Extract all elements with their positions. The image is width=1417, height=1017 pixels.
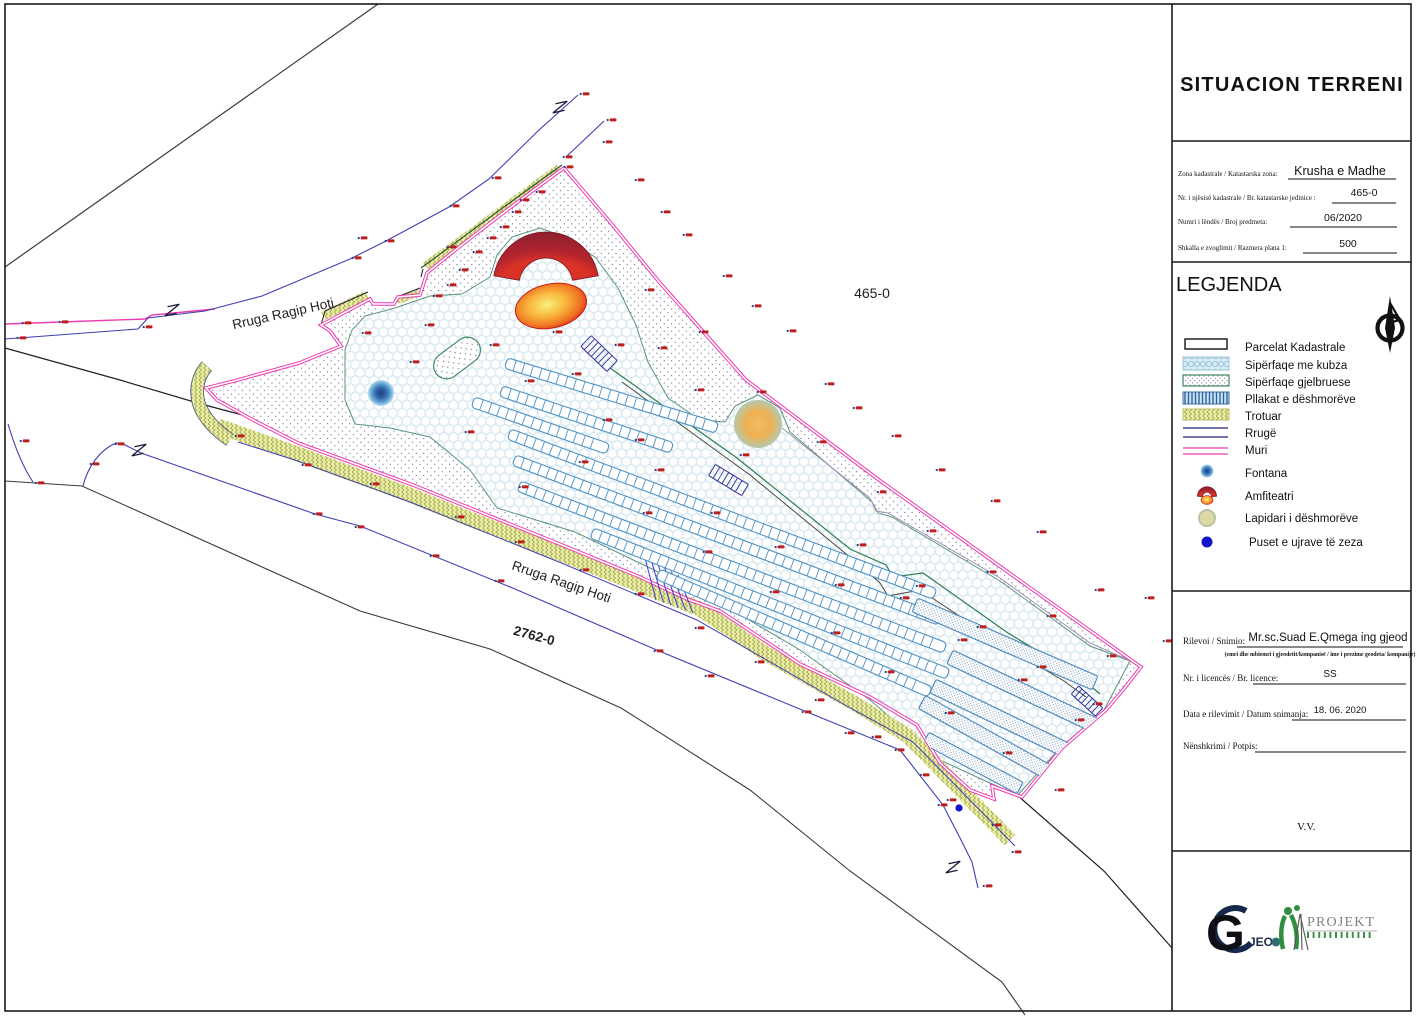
svg-text:LEGJENDA: LEGJENDA (1176, 274, 1282, 296)
svg-text:06/2020: 06/2020 (1324, 212, 1362, 224)
svg-text:500: 500 (1339, 238, 1357, 250)
svg-text:18. 06. 2020: 18. 06. 2020 (1314, 705, 1367, 716)
svg-text:SITUACION TERRENI: SITUACION TERRENI (1180, 74, 1404, 96)
svg-text:Muri: Muri (1245, 445, 1267, 457)
svg-text:Krusha e Madhe: Krusha e Madhe (1294, 164, 1386, 178)
svg-text:Numri i lëndës / Broj predmeta: Numri i lëndës / Broj predmeta: (1178, 218, 1267, 226)
svg-text:Sipërfaqe gjelbruese: Sipërfaqe gjelbruese (1245, 377, 1351, 389)
svg-text:Sipërfaqe me kubza: Sipërfaqe me kubza (1245, 360, 1348, 372)
svg-text:(emri dhe mbiemri i gjeodetit/: (emri dhe mbiemri i gjeodetit/kompanisë … (1225, 651, 1416, 658)
svg-text:Rilevoi / Snimio:: Rilevoi / Snimio: (1183, 636, 1245, 646)
svg-text:SS: SS (1323, 669, 1337, 680)
svg-text:Parcelat Kadastrale: Parcelat Kadastrale (1245, 342, 1345, 354)
svg-text:Nr. i njësisë kadastrale / Br.: Nr. i njësisë kadastrale / Br. katastars… (1178, 194, 1316, 202)
svg-text:Nr. i licencës / Br. licence:: Nr. i licencës / Br. licence: (1183, 673, 1278, 683)
svg-text:Data e rilevimit / Datum snima: Data e rilevimit / Datum snimanja: (1183, 709, 1308, 719)
svg-text:PROJEKT: PROJEKT (1307, 915, 1375, 930)
svg-text:Zona kadastrale / Katastarska: Zona kadastrale / Katastarska zona: (1178, 170, 1278, 178)
svg-text:Shkalla e zvoglimit / Razmera: Shkalla e zvoglimit / Razmera plana 1: (1178, 244, 1287, 252)
svg-text:465-0: 465-0 (1351, 187, 1378, 199)
svg-text:G: G (1206, 905, 1245, 961)
svg-text:Amfiteatri: Amfiteatri (1245, 491, 1294, 503)
svg-text:Trotuar: Trotuar (1245, 411, 1282, 423)
svg-text:Pllakat e dëshmorëve: Pllakat e dëshmorëve (1245, 394, 1356, 406)
svg-text:Lapidari i dëshmorëve: Lapidari i dëshmorëve (1245, 513, 1358, 525)
svg-text:465-0: 465-0 (854, 285, 890, 301)
svg-text:Rrugë: Rrugë (1245, 428, 1276, 440)
svg-text:V.V.: V.V. (1297, 821, 1316, 833)
svg-text:Puset e ujrave të zeza: Puset e ujrave të zeza (1249, 537, 1363, 549)
svg-text:Mr.sc.Suad E.Qmega ing gjeod: Mr.sc.Suad E.Qmega ing gjeod (1248, 632, 1407, 644)
svg-text:JEO: JEO (1249, 935, 1273, 949)
svg-text:Fontana: Fontana (1245, 468, 1288, 480)
svg-text:Nënshkrimi / Potpis:: Nënshkrimi / Potpis: (1183, 741, 1258, 751)
